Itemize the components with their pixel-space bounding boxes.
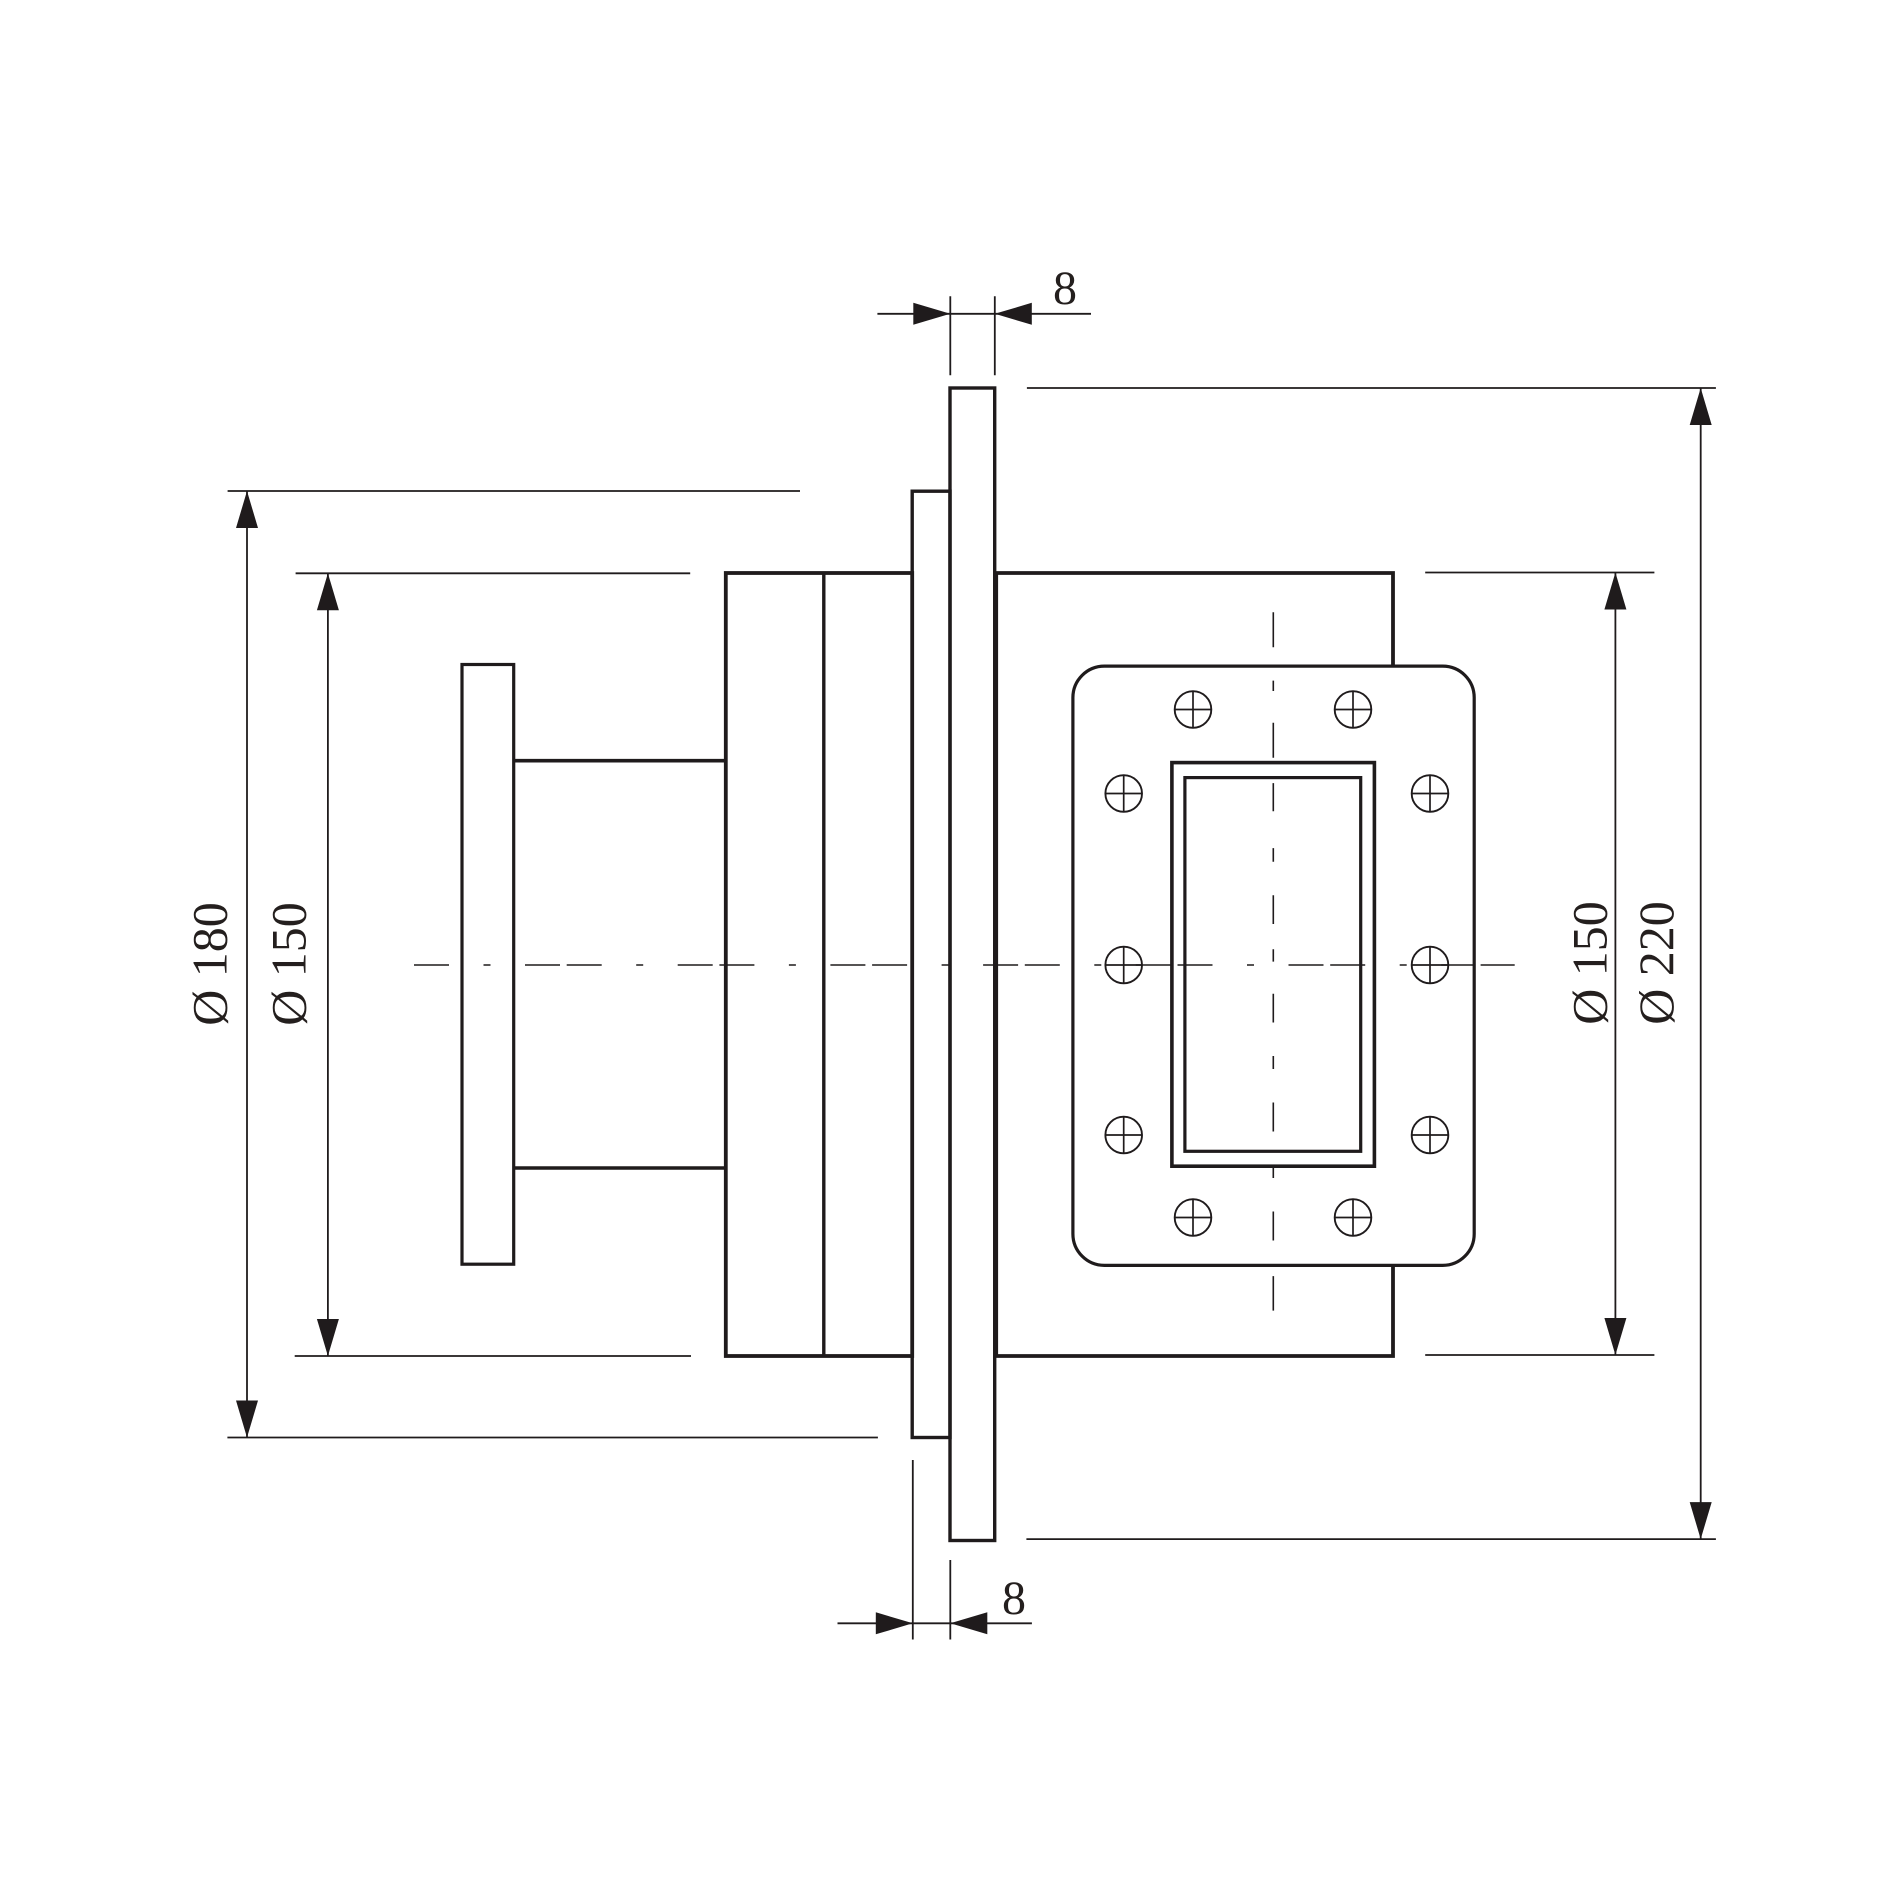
- svg-text:8: 8: [1002, 1572, 1026, 1625]
- svg-text:Ø 180: Ø 180: [182, 902, 238, 1026]
- svg-text:Ø 150: Ø 150: [1562, 901, 1618, 1025]
- svg-text:Ø 220: Ø 220: [1628, 901, 1684, 1025]
- svg-text:8: 8: [1053, 262, 1077, 315]
- svg-text:Ø 150: Ø 150: [261, 902, 317, 1026]
